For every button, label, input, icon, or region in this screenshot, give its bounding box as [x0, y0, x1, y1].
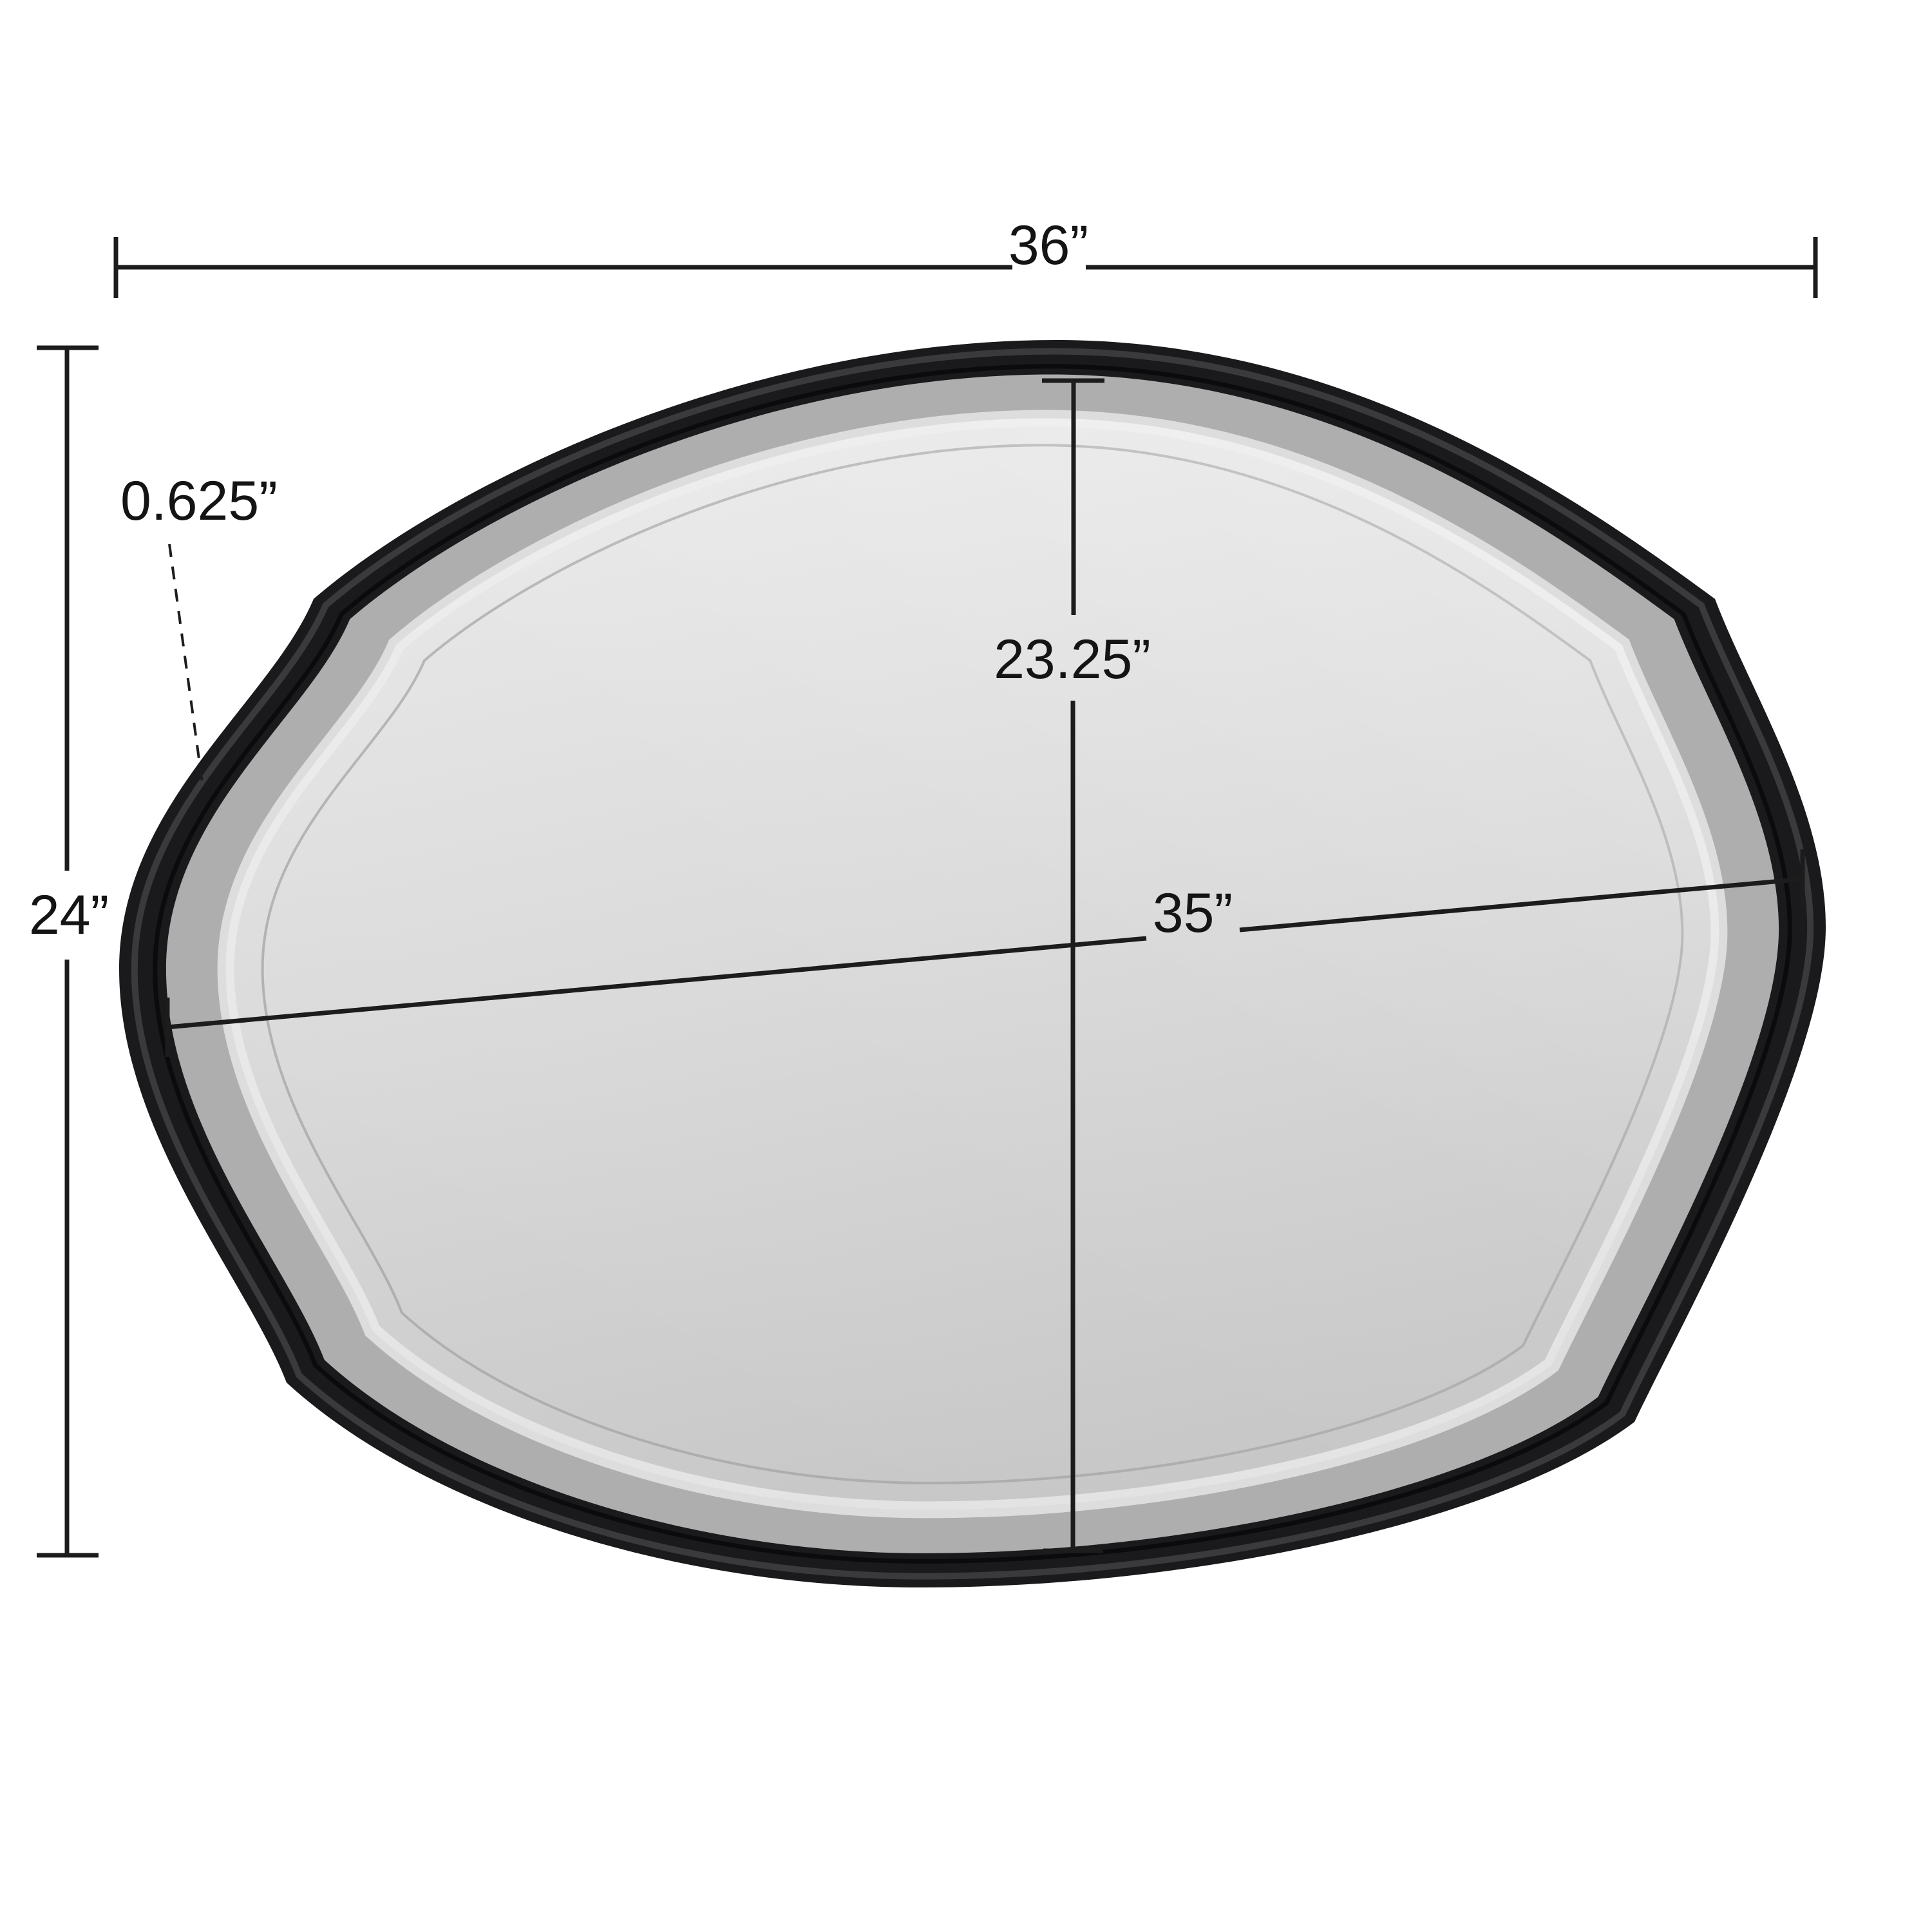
dim-outer-height — [37, 348, 99, 1555]
dim-label-outer-width: 36” — [1009, 214, 1088, 276]
dim-frame-depth-leader — [169, 544, 203, 787]
dim-label-frame-depth: 0.625” — [120, 470, 278, 532]
mirror-dimension-diagram: 36” 24” 0.625” 23.25” 35” — [0, 0, 1932, 1932]
dim-label-outer-height: 24” — [29, 884, 109, 946]
dim-outer-width — [116, 237, 1815, 298]
mirror — [119, 340, 1826, 1587]
dim-label-inner-width: 35” — [1153, 882, 1233, 944]
dim-label-inner-height: 23.25” — [994, 629, 1151, 690]
